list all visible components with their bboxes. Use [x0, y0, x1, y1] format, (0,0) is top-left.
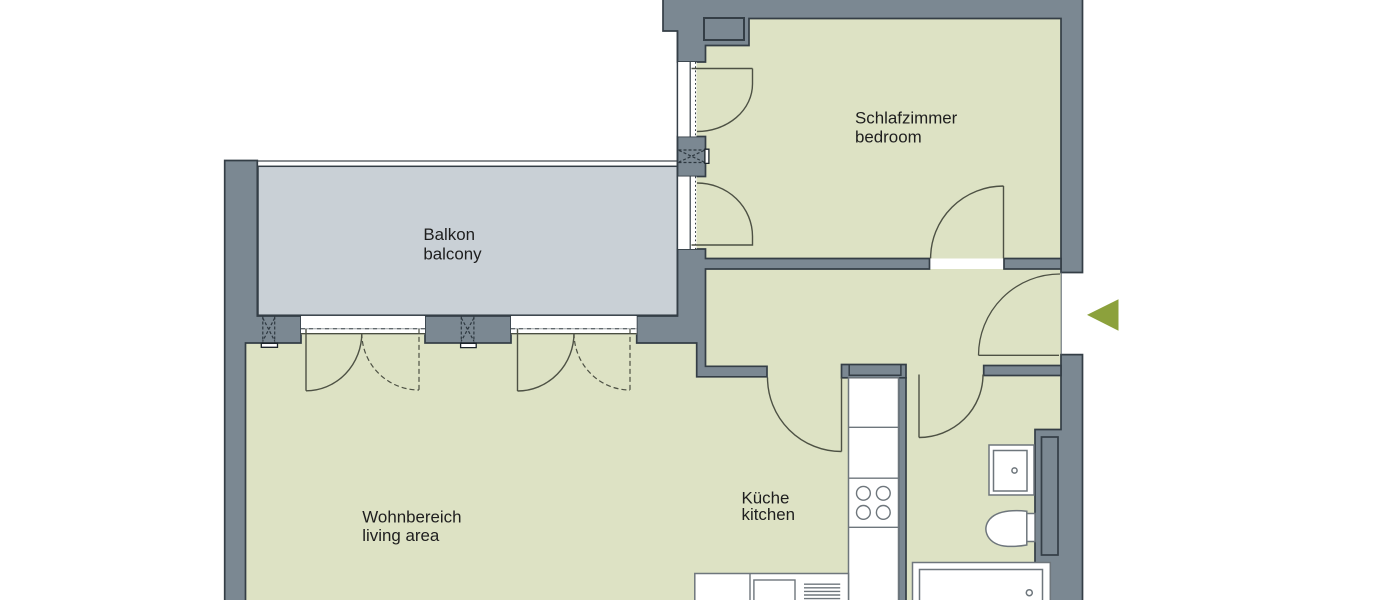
svg-text:living area: living area: [362, 526, 440, 545]
svg-text:Wohnbereich: Wohnbereich: [362, 507, 461, 526]
svg-text:kitchen: kitchen: [742, 505, 796, 524]
svg-text:bedroom: bedroom: [855, 128, 922, 147]
svg-text:balcony: balcony: [423, 245, 482, 264]
svg-text:Schlafzimmer: Schlafzimmer: [855, 109, 958, 128]
svg-text:Balkon: Balkon: [423, 225, 475, 244]
